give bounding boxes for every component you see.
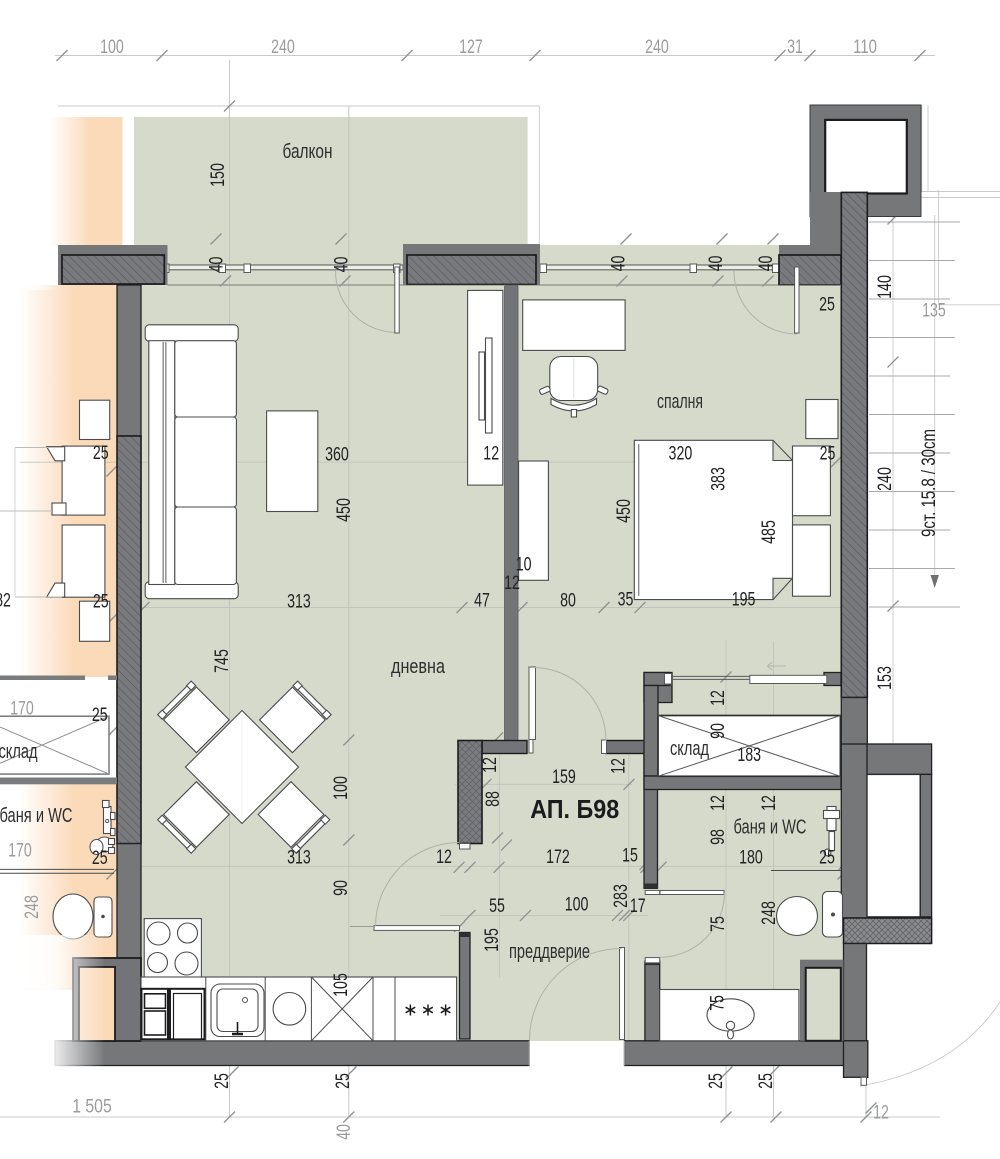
svg-text:АП. Б98: АП. Б98 [530, 794, 619, 824]
svg-text:153: 153 [874, 666, 896, 690]
svg-text:90: 90 [707, 723, 729, 739]
svg-text:12: 12 [758, 795, 780, 811]
svg-text:47: 47 [474, 590, 490, 612]
svg-text:25: 25 [820, 443, 836, 465]
svg-text:240: 240 [874, 467, 896, 491]
svg-text:75: 75 [706, 995, 728, 1011]
svg-text:75: 75 [707, 916, 729, 932]
svg-text:135: 135 [922, 300, 946, 322]
svg-text:150: 150 [207, 163, 229, 187]
svg-text:12: 12 [436, 846, 452, 868]
svg-text:25: 25 [211, 1073, 233, 1089]
svg-text:спалня: спалня [657, 391, 703, 413]
svg-text:127: 127 [459, 36, 483, 58]
svg-text:склад: склад [0, 741, 38, 763]
svg-text:195: 195 [481, 928, 503, 952]
svg-text:80: 80 [560, 590, 576, 612]
svg-text:159: 159 [552, 766, 576, 788]
svg-text:склад: склад [670, 738, 709, 760]
svg-text:100: 100 [100, 36, 124, 58]
svg-text:дневна: дневна [391, 656, 446, 678]
svg-text:40: 40 [607, 255, 629, 271]
svg-text:31: 31 [787, 36, 803, 58]
svg-text:98: 98 [707, 829, 729, 845]
svg-text:баня и WC: баня и WC [734, 817, 807, 839]
svg-text:12: 12 [504, 572, 520, 594]
svg-text:170: 170 [8, 840, 32, 862]
svg-text:140: 140 [874, 275, 896, 299]
svg-text:35: 35 [618, 589, 634, 611]
svg-text:25: 25 [705, 1073, 727, 1089]
svg-text:12: 12 [707, 690, 729, 706]
svg-text:25: 25 [819, 847, 835, 869]
svg-text:балкон: балкон [283, 141, 333, 163]
svg-text:баня и WC: баня и WC [0, 805, 73, 827]
svg-text:40: 40 [205, 256, 227, 272]
svg-text:9ст. 15.8 / 30cm: 9ст. 15.8 / 30cm [918, 429, 940, 537]
svg-text:25: 25 [819, 294, 835, 316]
svg-text:40: 40 [333, 1124, 355, 1140]
svg-text:195: 195 [732, 589, 756, 611]
svg-text:283: 283 [610, 884, 632, 908]
svg-text:12: 12 [483, 443, 499, 465]
svg-text:240: 240 [645, 36, 669, 58]
svg-text:55: 55 [489, 895, 505, 917]
svg-text:240: 240 [271, 36, 295, 58]
svg-text:17: 17 [630, 895, 646, 917]
svg-text:25: 25 [93, 591, 109, 613]
svg-text:25: 25 [92, 847, 108, 869]
svg-text:172: 172 [546, 846, 570, 868]
svg-text:745: 745 [211, 649, 233, 673]
svg-text:313: 313 [287, 591, 311, 613]
svg-text:183: 183 [737, 744, 761, 766]
svg-text:40: 40 [755, 255, 777, 271]
svg-text:преддверие: преддверие [509, 941, 590, 963]
svg-text:12: 12 [607, 758, 629, 774]
svg-text:180: 180 [739, 847, 763, 869]
svg-text:12: 12 [873, 1102, 889, 1124]
svg-text:12: 12 [479, 757, 501, 773]
svg-text:82: 82 [0, 590, 11, 612]
svg-text:383: 383 [707, 467, 729, 491]
svg-text:1 505: 1 505 [72, 1096, 112, 1118]
svg-text:90: 90 [330, 880, 352, 896]
svg-text:100: 100 [565, 894, 589, 916]
svg-text:25: 25 [92, 704, 108, 726]
svg-text:25: 25 [332, 1073, 354, 1089]
svg-text:450: 450 [333, 498, 355, 522]
svg-text:320: 320 [669, 443, 693, 465]
svg-text:248: 248 [21, 895, 43, 919]
svg-text:88: 88 [482, 791, 504, 807]
svg-text:25: 25 [93, 442, 109, 464]
svg-text:12: 12 [707, 795, 729, 811]
svg-text:40: 40 [330, 256, 352, 272]
svg-text:110: 110 [853, 36, 877, 58]
svg-text:105: 105 [330, 973, 352, 997]
svg-text:100: 100 [330, 776, 352, 800]
svg-text:248: 248 [758, 901, 780, 925]
svg-text:170: 170 [10, 698, 34, 720]
svg-text:360: 360 [325, 444, 349, 466]
svg-text:485: 485 [758, 520, 780, 544]
svg-text:25: 25 [755, 1073, 777, 1089]
svg-text:313: 313 [287, 847, 311, 869]
svg-text:40: 40 [705, 255, 727, 271]
svg-text:450: 450 [613, 499, 635, 523]
svg-text:15: 15 [622, 845, 638, 867]
